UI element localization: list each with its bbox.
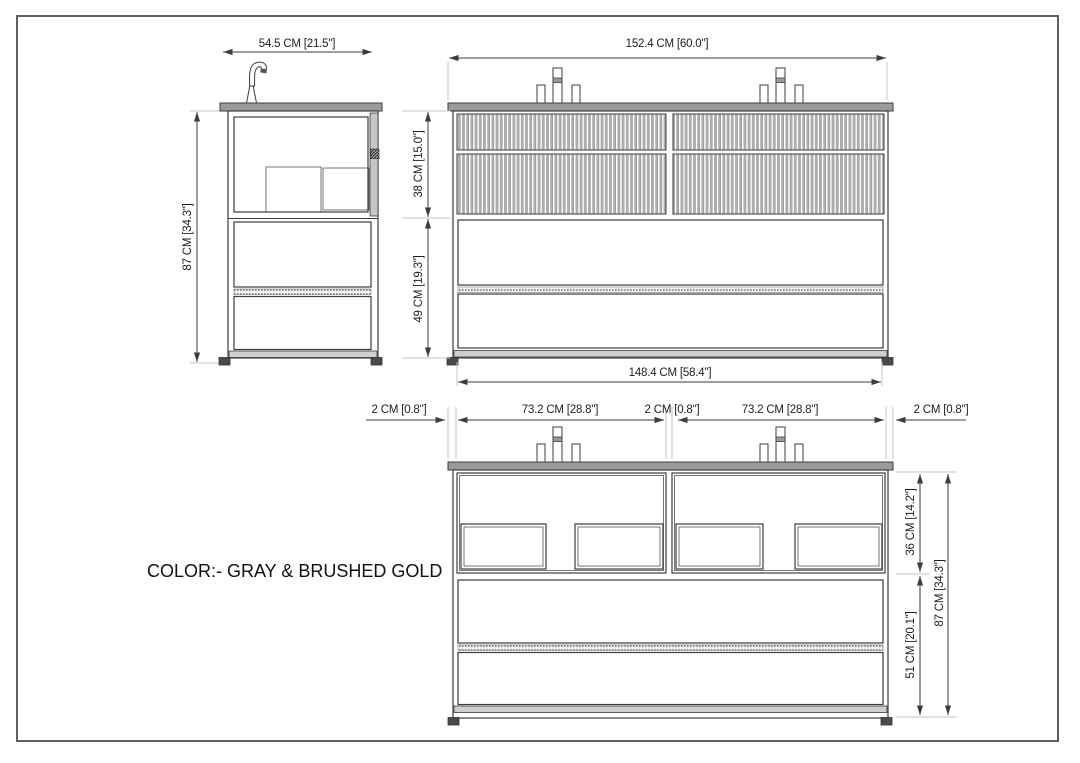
front-width-dimension-label: 152.4 CM [60.0"] bbox=[626, 38, 709, 50]
drawer-box bbox=[795, 524, 882, 569]
leg-foot bbox=[371, 358, 382, 366]
technical-drawing bbox=[0, 0, 1080, 763]
drawer-front bbox=[234, 222, 371, 287]
leg-foot bbox=[448, 718, 459, 726]
leg-foot bbox=[219, 358, 230, 366]
bottom-rail bbox=[229, 351, 377, 358]
divider-strip bbox=[458, 645, 883, 651]
open-shelf-section bbox=[458, 294, 883, 348]
drawer-front bbox=[234, 297, 371, 350]
front-drawer-height-dimension-label: 38 CM [15.0"] bbox=[413, 130, 425, 197]
faucet-icon bbox=[760, 68, 803, 103]
leg-foot bbox=[882, 358, 893, 366]
fluted-drawer-panel bbox=[673, 154, 884, 214]
front-open-height-dimension-label: 49 CM [19.3"] bbox=[413, 255, 425, 322]
countertop bbox=[220, 103, 382, 111]
side-view bbox=[190, 52, 382, 365]
countertop bbox=[448, 103, 893, 111]
open-shelf-section bbox=[458, 580, 883, 643]
detail-drawer-height-dimension-label: 36 CM [14.2"] bbox=[905, 488, 917, 555]
fluted-drawer-panel bbox=[457, 114, 666, 150]
detail-right-module-dimension-label: 73.2 CM [28.8"] bbox=[742, 404, 819, 416]
faucet-handle bbox=[795, 444, 803, 462]
leg-foot bbox=[881, 718, 892, 726]
cabinet-interior bbox=[234, 117, 368, 212]
faucet-icon bbox=[247, 62, 267, 103]
front-view bbox=[402, 58, 893, 386]
drawer-front-edge bbox=[370, 113, 378, 216]
faucet-icon bbox=[537, 68, 580, 103]
drawer-box bbox=[676, 524, 763, 569]
drawer-box bbox=[575, 524, 663, 569]
faucet-handle bbox=[760, 444, 768, 462]
faucet-icon bbox=[537, 427, 580, 462]
faucet-handle bbox=[537, 444, 545, 462]
color-note: COLOR:- GRAY & BRUSHED GOLD bbox=[147, 561, 442, 582]
faucet-handle bbox=[760, 85, 768, 103]
detail-left-module-dimension-label: 73.2 CM [28.8"] bbox=[522, 404, 599, 416]
faucet-handle bbox=[572, 85, 580, 103]
side-height-dimension-label: 87 CM [34.3"] bbox=[182, 203, 194, 270]
open-shelf-section bbox=[458, 653, 883, 705]
open-shelf-section bbox=[458, 220, 883, 285]
divider-strip bbox=[234, 289, 371, 295]
faucet-handle bbox=[795, 85, 803, 103]
bottom-rail bbox=[454, 706, 887, 713]
faucet-icon bbox=[760, 427, 803, 462]
leg-foot bbox=[447, 358, 458, 366]
vanity-drawing-sheet: 54.5 CM [21.5"] 87 CM [34.3"] 152.4 CM [… bbox=[0, 0, 1080, 763]
faucet-handle bbox=[537, 85, 545, 103]
faucet-handle bbox=[572, 444, 580, 462]
countertop bbox=[448, 462, 893, 470]
bottom-detail-view bbox=[366, 407, 966, 725]
drawer-box bbox=[461, 524, 546, 569]
knob-icon bbox=[371, 149, 380, 159]
bottom-rail bbox=[454, 351, 887, 358]
fluted-drawer-panel bbox=[673, 114, 884, 150]
divider-strip bbox=[458, 287, 883, 293]
detail-center-gap-dimension-label: 2 CM [0.8"] bbox=[645, 404, 700, 416]
detail-right-overhang-dimension-label: 2 CM [0.8"] bbox=[914, 404, 969, 416]
fluted-drawer-panel bbox=[457, 154, 666, 214]
detail-total-height-dimension-label: 87 CM [34.3"] bbox=[934, 559, 946, 626]
front-base-width-dimension-label: 148.4 CM [58.4"] bbox=[629, 367, 712, 379]
side-width-dimension-label: 54.5 CM [21.5"] bbox=[259, 38, 336, 50]
detail-left-overhang-dimension-label: 2 CM [0.8"] bbox=[372, 404, 427, 416]
detail-open-height-dimension-label: 51 CM [20.1"] bbox=[905, 611, 917, 678]
